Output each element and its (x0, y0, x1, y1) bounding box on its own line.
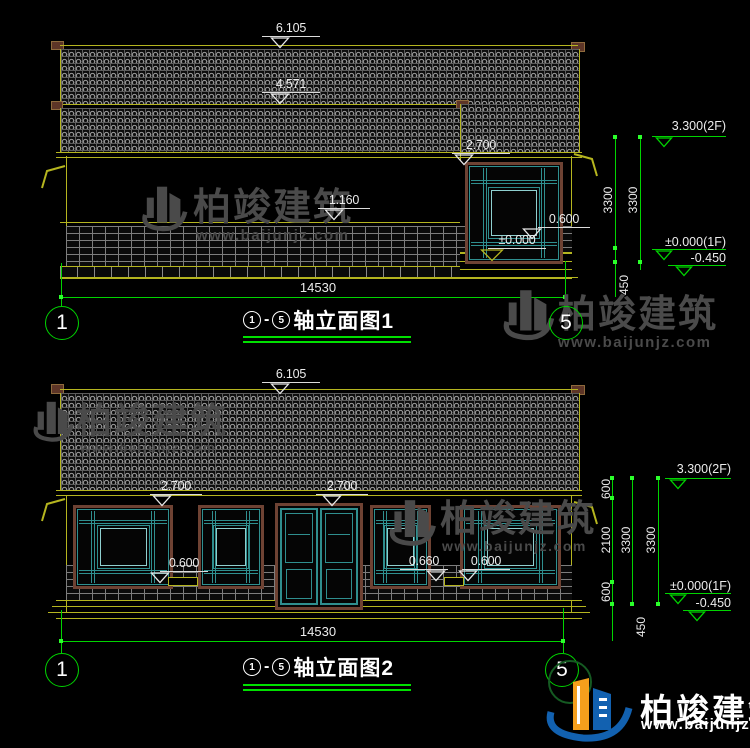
eave-bracket-right-icon (572, 152, 600, 178)
step-line (56, 618, 582, 619)
dim-chain-line (640, 137, 641, 270)
door-lower-panel (286, 569, 312, 599)
level-value: ±0.000(1F) (670, 579, 731, 593)
drawing-title-1: 1 - 5 轴立面图1 (243, 305, 394, 335)
width-dim-text: 14530 (288, 280, 348, 295)
door-lattice-panel (285, 513, 313, 563)
roof-tiles-upper (60, 49, 580, 104)
door-lattice-panel (325, 513, 353, 563)
level-marker-sill-left: 0.600 (160, 556, 208, 587)
step-line (48, 612, 590, 613)
dim-chain-line (612, 478, 613, 641)
level-marker-sill-right: 0.600 (462, 554, 510, 585)
dim-text-3300: 3300 (626, 187, 640, 214)
axis-bubble-1: 1 (45, 653, 79, 687)
dim-text-3300: 3300 (644, 527, 658, 554)
level-marker-ridge: 6.105 (262, 367, 320, 398)
title-underline (243, 336, 411, 338)
level-triangle-icon (426, 570, 446, 582)
title-underline (243, 689, 411, 691)
axis-bubble-5: 5 (549, 306, 583, 340)
level-triangle-icon (270, 93, 290, 105)
lattice-line (246, 511, 250, 583)
title-dash: - (264, 311, 269, 329)
extension-line (563, 608, 564, 653)
level-value: 2.700 (150, 479, 202, 493)
level-value: 3.300(2F) (672, 119, 726, 133)
drawing-title-2: 1 - 5 轴立面图2 (243, 652, 394, 682)
window-center-panel (216, 528, 246, 565)
footer-url: www.baijunjz.com (641, 717, 750, 733)
right-level-2f: 3.300(2F) (665, 462, 731, 490)
level-marker-window-head: 1.160 (318, 193, 370, 224)
width-dim-text: 14530 (288, 624, 348, 639)
level-triangle-icon (270, 383, 290, 395)
level-marker-eave: 2.700 (452, 138, 510, 169)
watermark-brand: 柏竣建筑 (76, 392, 228, 444)
level-marker-upper-eave: 4.571 (262, 77, 320, 108)
dim-text-2100: 2100 (599, 527, 613, 554)
title-text: 轴立面图1 (293, 305, 394, 335)
eave-bracket-left-icon (39, 497, 67, 523)
level-value: 4.571 (262, 77, 320, 91)
watermark-logo-icon (500, 285, 556, 341)
level-triangle-icon (688, 611, 706, 622)
level-triangle-icon (270, 37, 290, 49)
level-triangle-icon (675, 266, 693, 277)
axis-bubble-1: 1 (45, 306, 79, 340)
watermark-logo-icon (32, 396, 74, 444)
level-marker-zero: ±0.000 (488, 233, 546, 265)
title-underline (243, 684, 411, 686)
level-marker-sill-mid: 0.660 (400, 554, 448, 585)
door-rail (328, 534, 350, 535)
level-value: -0.450 (696, 596, 731, 610)
door-rail (288, 534, 310, 535)
watermark-logo-icon (388, 488, 436, 554)
watermark-brand: 柏竣建筑 (440, 488, 596, 542)
door-leaf-right (320, 508, 358, 605)
window-center-panel (100, 528, 147, 565)
title-dash: - (264, 658, 269, 676)
cad-canvas: 6.105 4.571 2.700 1.160 0.600 ±0.000 (0, 0, 750, 748)
watermark-url: www.baijunjz.com (80, 440, 228, 455)
width-dim-line (61, 297, 566, 298)
level-triangle-icon (480, 249, 504, 262)
extension-line (61, 263, 62, 306)
level-value: 0.660 (400, 554, 448, 568)
level-value: 0.600 (462, 554, 510, 568)
double-door (275, 503, 363, 610)
dim-chain-line (615, 137, 616, 297)
level-triangle-icon (324, 209, 344, 221)
level-value: ±0.000(1F) (665, 235, 726, 249)
level-value: 0.600 (538, 212, 590, 226)
title-axis-end: 5 (272, 311, 290, 329)
level-marker-eave-right: 2.700 (316, 479, 368, 510)
level-value: 2.700 (316, 479, 368, 493)
watermark-logo-icon (138, 182, 190, 232)
dim-text-3300: 3300 (619, 527, 633, 554)
level-triangle-icon (458, 570, 478, 582)
level-triangle-icon (150, 572, 170, 584)
dim-text-600: 600 (599, 479, 613, 499)
watermark: 柏竣建筑 www.baijunjz.com (32, 392, 228, 455)
level-value: 0.600 (160, 556, 208, 570)
door-leaf-left (280, 508, 318, 605)
level-value: ±0.000 (488, 233, 546, 247)
level-value: 6.105 (262, 21, 320, 35)
title-axis-end: 5 (272, 658, 290, 676)
roof-tiles-lower (60, 108, 462, 152)
level-value: -0.450 (691, 251, 726, 265)
level-triangle-icon (454, 154, 474, 166)
level-triangle-icon (152, 495, 172, 507)
eave-bracket-left-icon (39, 164, 67, 190)
dim-text-3300: 3300 (601, 187, 615, 214)
watermark: 柏竣建筑 www.baijunjz.com (388, 488, 596, 554)
dim-text-450: 450 (617, 275, 631, 295)
level-value: 2.700 (452, 138, 510, 152)
level-triangle-icon (655, 137, 673, 148)
door-lower-panel (326, 569, 352, 599)
level-marker-eave-left: 2.700 (150, 479, 202, 510)
lattice-line (483, 168, 487, 258)
ground-line (60, 277, 578, 278)
right-level-2f: 3.300(2F) (652, 119, 726, 149)
right-level-base: -0.450 (683, 596, 731, 622)
footer-logo-icon (543, 672, 635, 744)
lattice-line (91, 511, 95, 583)
watermark-url: www.baijunjz.com (442, 538, 596, 554)
dim-chain-line (658, 478, 659, 604)
watermark-brand: 柏竣建筑 (558, 283, 718, 338)
extension-line (61, 610, 62, 653)
level-marker-ridge: 6.105 (262, 21, 320, 52)
level-value: 6.105 (262, 367, 320, 381)
dim-text-600: 600 (599, 582, 613, 602)
width-dim-line (61, 641, 564, 642)
watermark-url: www.baijunjz.com (196, 227, 353, 244)
title-axis-start: 1 (243, 311, 261, 329)
dim-text-450: 450 (634, 617, 648, 637)
title-underline (243, 341, 411, 343)
right-level-base: -0.450 (668, 251, 726, 277)
level-triangle-icon (322, 495, 342, 507)
title-text: 轴立面图2 (293, 652, 394, 682)
watermark-url: www.baijunjz.com (558, 334, 718, 351)
title-axis-start: 1 (243, 658, 261, 676)
level-value: 3.300(2F) (677, 462, 731, 476)
level-value: 1.160 (318, 193, 370, 207)
level-triangle-icon (669, 479, 687, 490)
watermark: 柏竣建筑 www.baijunjz.com (500, 283, 718, 351)
